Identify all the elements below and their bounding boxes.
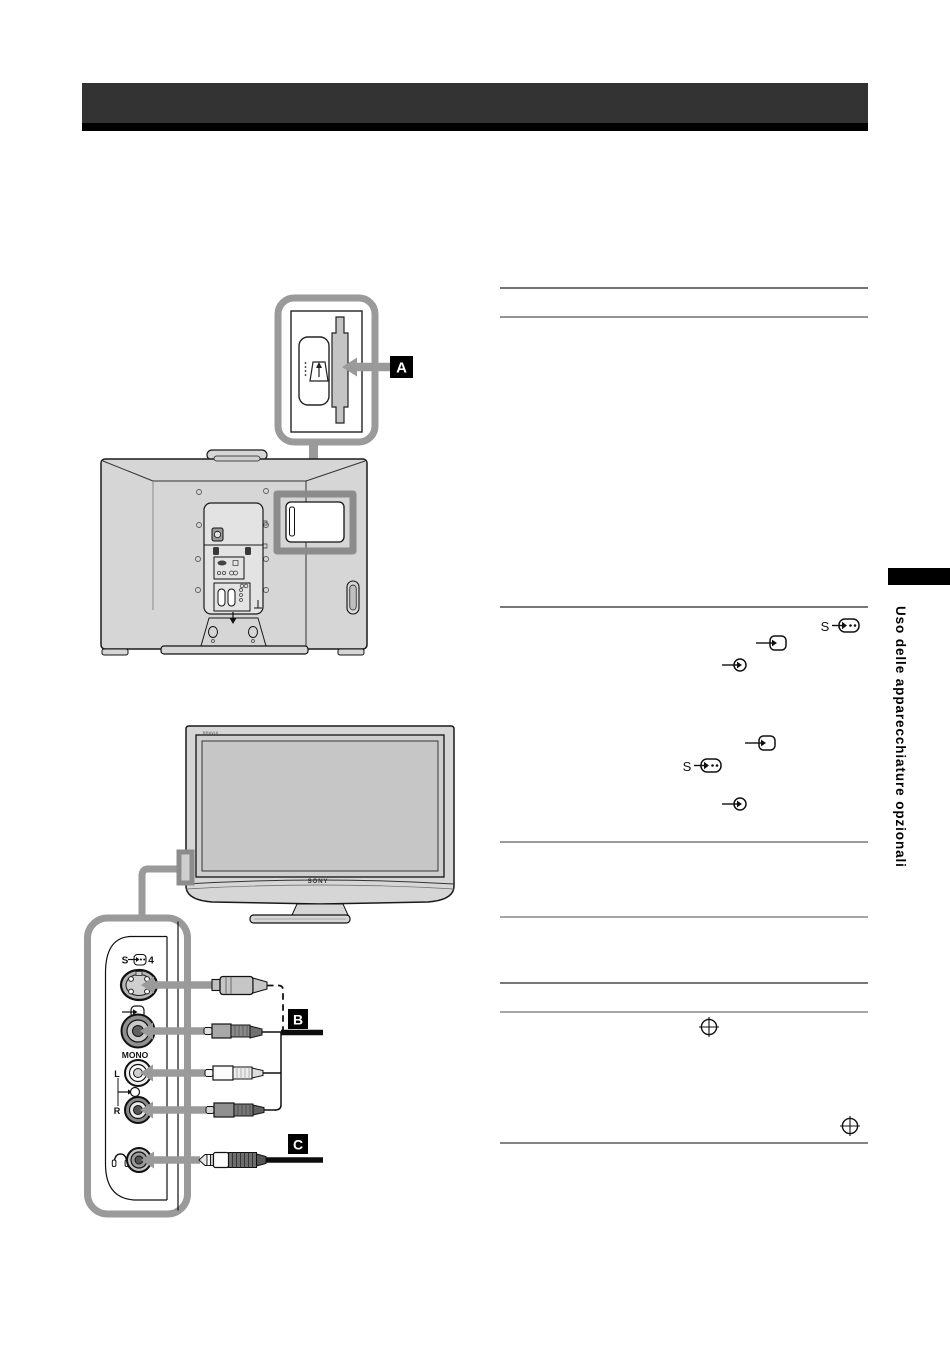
mono-label: MONO (122, 1050, 149, 1060)
svideo-label-number: 4 (148, 956, 154, 967)
brand-logo-text: SONY (308, 878, 329, 885)
diagram-artwork: A (0, 0, 950, 1349)
svg-text:C: C (293, 1137, 303, 1153)
svg-text:B: B (293, 1012, 303, 1028)
label-c: C (288, 1134, 308, 1154)
audio-input-icon (722, 659, 746, 671)
svg-text:S: S (821, 619, 830, 634)
audio-input-icon (722, 798, 746, 810)
rear-connector-recess (204, 503, 263, 614)
video-plug (204, 1024, 281, 1038)
rear-jack-group (214, 557, 244, 579)
page-reference-icon (840, 1116, 860, 1136)
audio-left-label: L (114, 1069, 120, 1079)
side-panel-callout: S 4 (88, 918, 188, 1214)
label-b: B (288, 1009, 308, 1029)
svideo-label-s: S (122, 956, 129, 967)
svideo-input-icon: S (683, 759, 721, 774)
audio-right-plug (206, 1103, 276, 1117)
page-reference-icon (699, 1017, 719, 1037)
stand-neck (292, 904, 348, 915)
headphone-plug (199, 1153, 323, 1168)
callout-connector-line (142, 869, 182, 919)
svideo-input-label: S 4 (122, 955, 155, 967)
tv-foot (338, 649, 364, 655)
video-input-icon (745, 736, 775, 750)
video-input-icon (756, 636, 786, 650)
rear-jack (213, 547, 219, 555)
svg-text:S: S (683, 759, 692, 774)
screen (202, 741, 438, 871)
label-a: A (390, 356, 413, 378)
svideo-input-icon: S (821, 619, 859, 634)
rear-jack (245, 547, 251, 555)
cable-junction (275, 1032, 323, 1110)
tv-front-view: BRAVIA SONY (142, 726, 454, 923)
cam-module-icon (332, 317, 348, 423)
sidebar-tab-marker (888, 568, 950, 585)
tv-foot (102, 649, 128, 655)
model-logo-text: BRAVIA (203, 731, 219, 735)
audio-right-label: R (114, 1106, 121, 1116)
side-connector-highlight (179, 852, 192, 883)
sidebar-section-title: Uso delle apparecchiature opzionali (893, 606, 908, 868)
audio-left-plug (205, 1066, 281, 1080)
stand-base (161, 646, 308, 654)
svideo-cable-dashed (267, 986, 283, 1031)
text-rules (500, 288, 868, 1143)
tv-rear-view (101, 450, 367, 655)
manual-page: A (0, 0, 950, 1349)
svideo-plug (212, 977, 283, 1031)
svg-text:A: A (396, 360, 407, 377)
inline-text-icons: S S (683, 619, 860, 1136)
